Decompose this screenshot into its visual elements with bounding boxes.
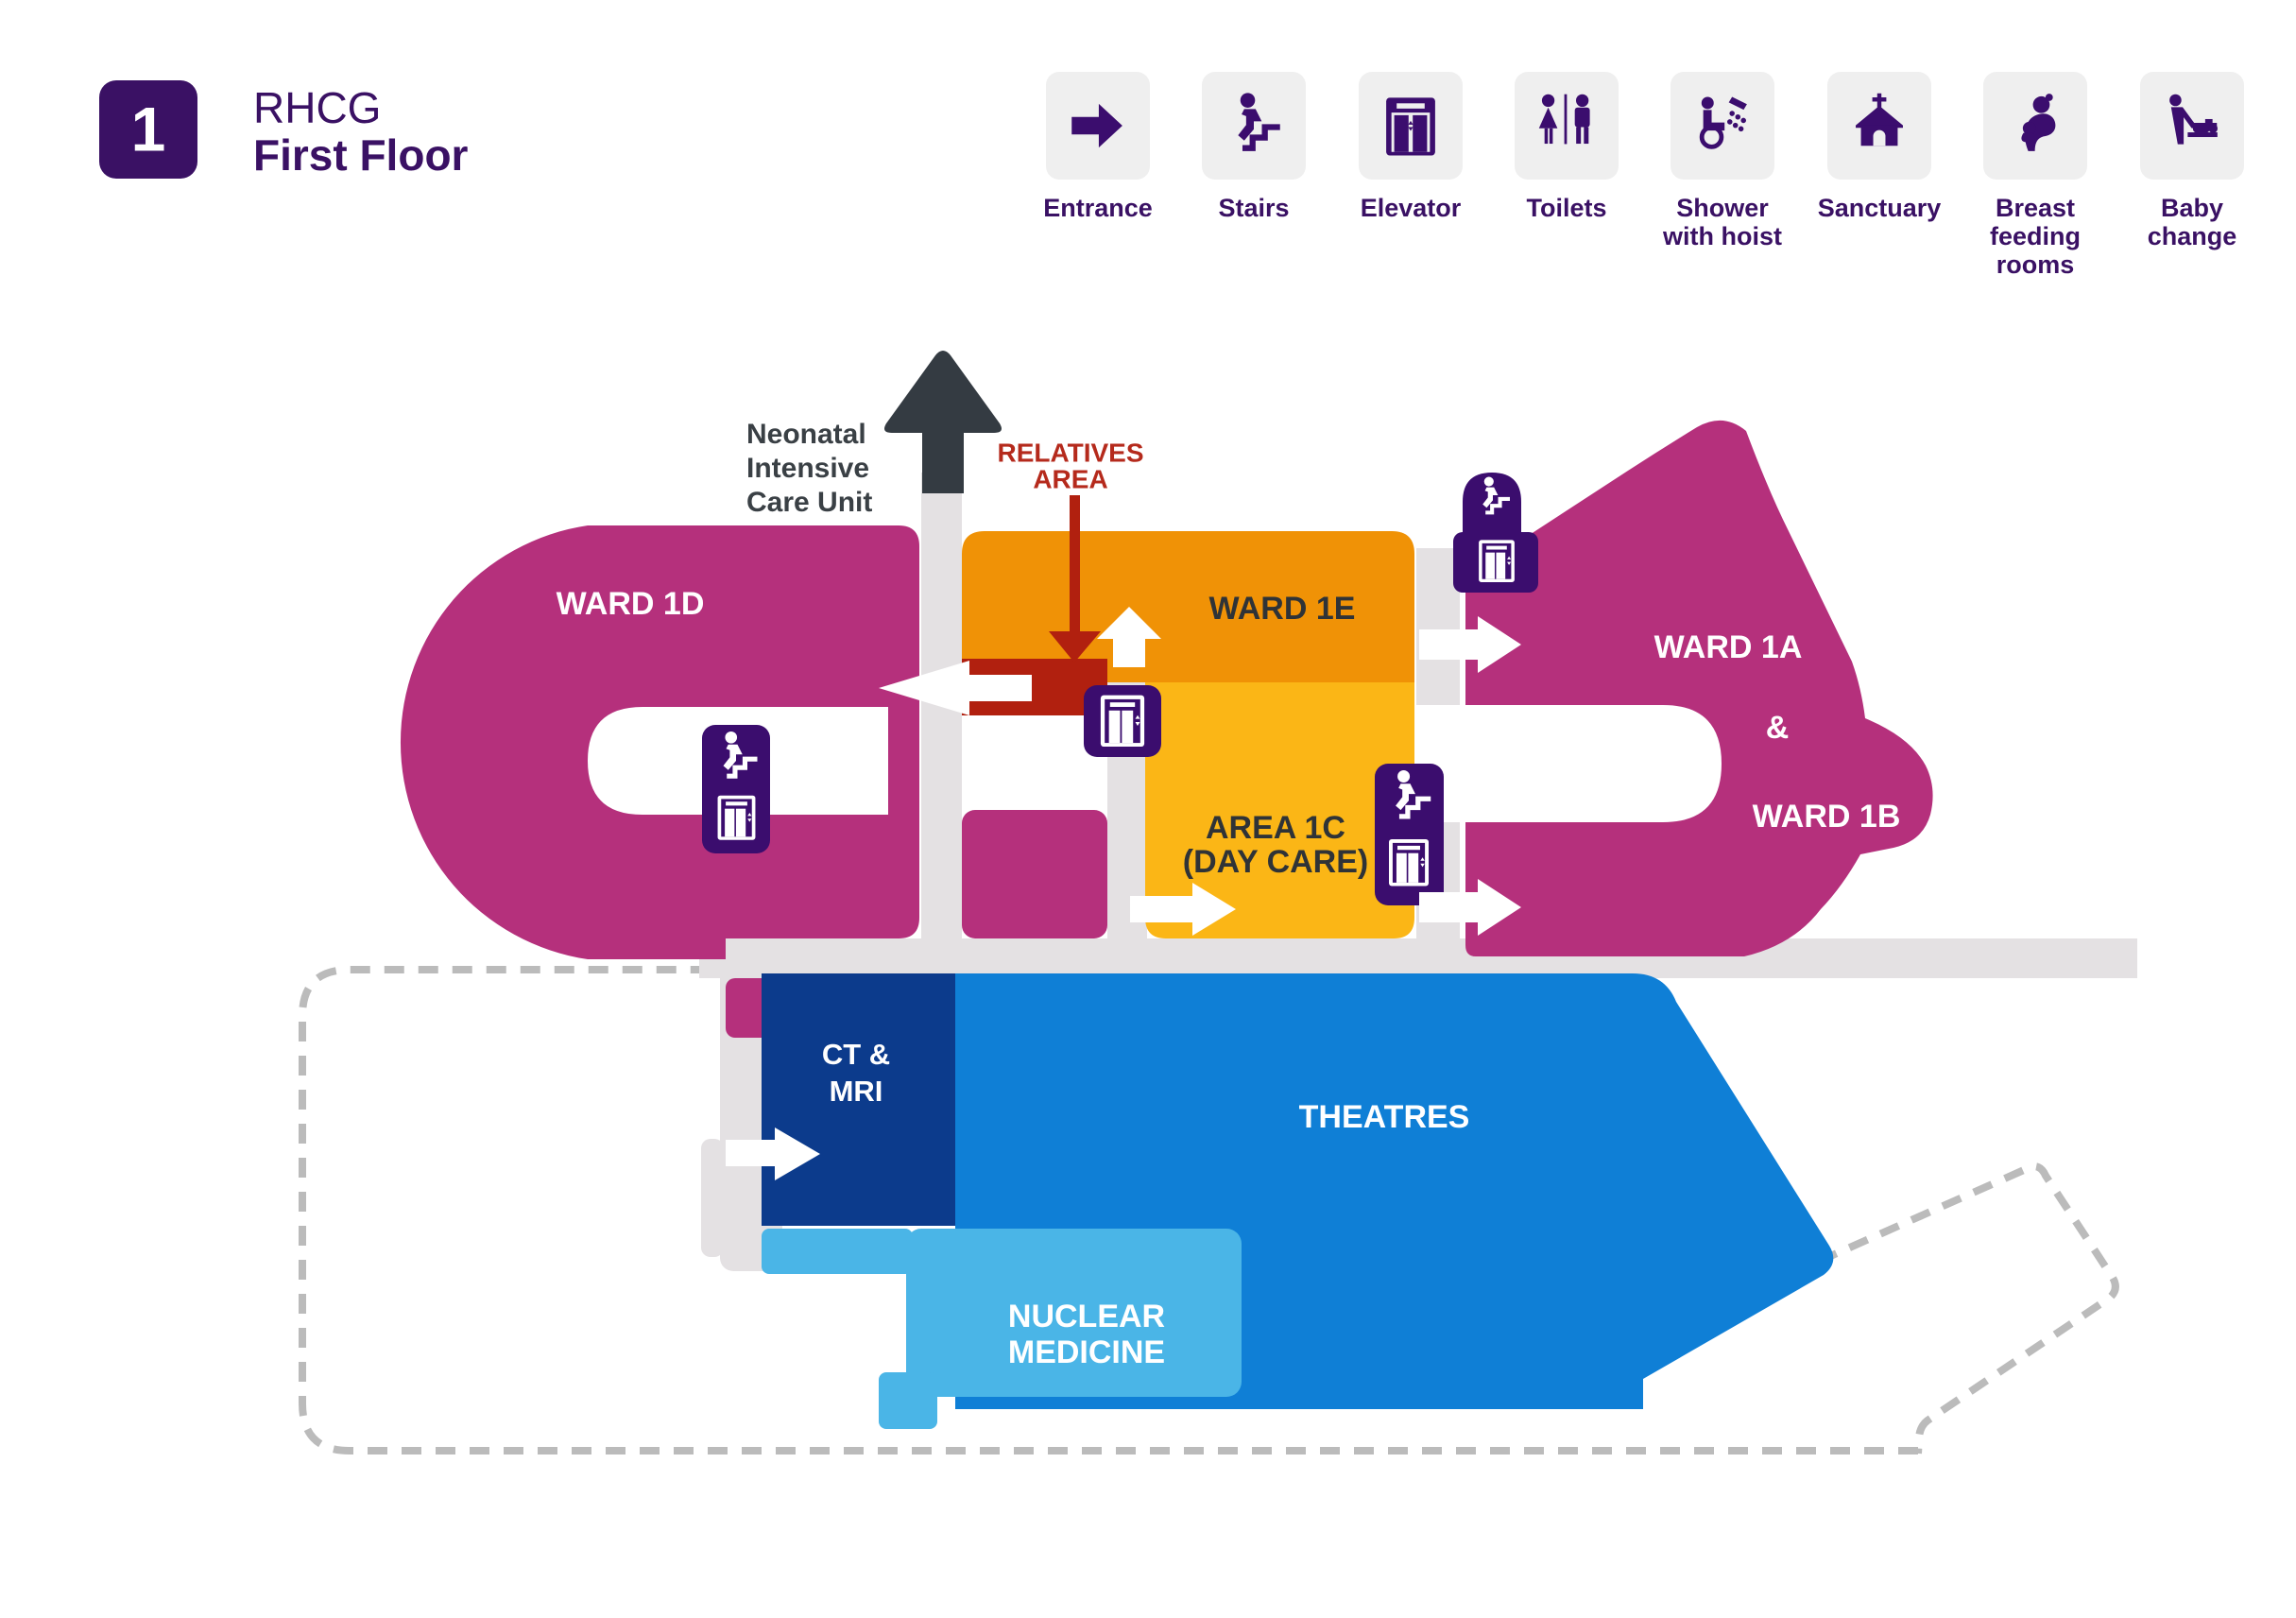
ward-block-center [962, 810, 1107, 938]
elevator-icon [1101, 696, 1144, 747]
site-code: RHCG [253, 83, 381, 132]
legend-label: Entrance [1043, 194, 1153, 222]
elevator-icon [718, 796, 756, 840]
legend-label: Toilets [1526, 194, 1606, 222]
relatives-label-line1: RELATIVES [997, 438, 1143, 467]
badge-stairs-elevator-ward1d [702, 725, 770, 853]
floor-plan-map: WARD 1D WARD 1E AREA 1C (DAY CARE) WARD … [0, 0, 2296, 1618]
legend: Entrance Stairs Elevator Toilets Shower … [1043, 72, 2244, 279]
legend-label: Stairs [1218, 194, 1289, 222]
area-1c-label-line2: (DAY CARE) [1183, 844, 1368, 880]
ct-mri-label-line2: MRI [830, 1075, 883, 1108]
nuclear-tab [879, 1372, 937, 1429]
floor-number: 1 [131, 94, 166, 164]
ct-mri-label-line1: CT & [822, 1038, 890, 1071]
area-1c-label-line1: AREA 1C [1206, 810, 1345, 846]
legend-label: rooms [1996, 250, 2075, 279]
relatives-label-line2: AREA [1033, 464, 1107, 493]
header: 1 RHCG First Floor [99, 80, 469, 180]
legend-label: feeding [1990, 222, 2081, 250]
nicu-label-line3: Care Unit [746, 487, 872, 518]
nuclear-label-line2: MEDICINE [1008, 1334, 1165, 1370]
nicu-label-line2: Intensive [746, 453, 869, 484]
nuclear-label-line1: NUCLEAR [1008, 1299, 1165, 1334]
nuclear-wing [762, 1229, 913, 1274]
nicu-label-line1: Neonatal [746, 419, 866, 450]
corridor-nicu [921, 473, 962, 978]
ward-1b-label: WARD 1B [1753, 799, 1901, 835]
ward-1a-label: WARD 1A [1654, 629, 1803, 665]
legend-label: Baby [2161, 194, 2223, 222]
legend-label: Elevator [1361, 194, 1462, 222]
badge-stairs-elevator-area1c [1375, 764, 1444, 905]
elevator-icon [1386, 97, 1435, 155]
legend-label: Shower [1676, 194, 1769, 222]
ward-1a-1b-inner-slot [1414, 705, 1722, 822]
nicu-arrow [884, 351, 1002, 493]
badge-elevator-relatives [1084, 685, 1161, 757]
elevator-icon [1389, 839, 1429, 886]
legend-label: Sanctuary [1818, 194, 1942, 222]
legend-label: change [2148, 222, 2237, 250]
ward-1d-label: WARD 1D [557, 586, 705, 622]
ward-ampersand-label: & [1766, 710, 1790, 746]
legend-label: with hoist [1662, 222, 1782, 250]
theatres-label: THEATRES [1299, 1099, 1470, 1135]
badge-stairs-elevator-ward1a [1453, 473, 1538, 593]
page-title: First Floor [253, 130, 469, 180]
ward-1e-label: WARD 1E [1209, 591, 1356, 627]
legend-label: Breast [1996, 194, 2075, 222]
corridor-ctmri-tab [701, 1139, 724, 1257]
ward-1a-1b-shape [1465, 421, 1933, 956]
elevator-icon [1479, 540, 1515, 582]
